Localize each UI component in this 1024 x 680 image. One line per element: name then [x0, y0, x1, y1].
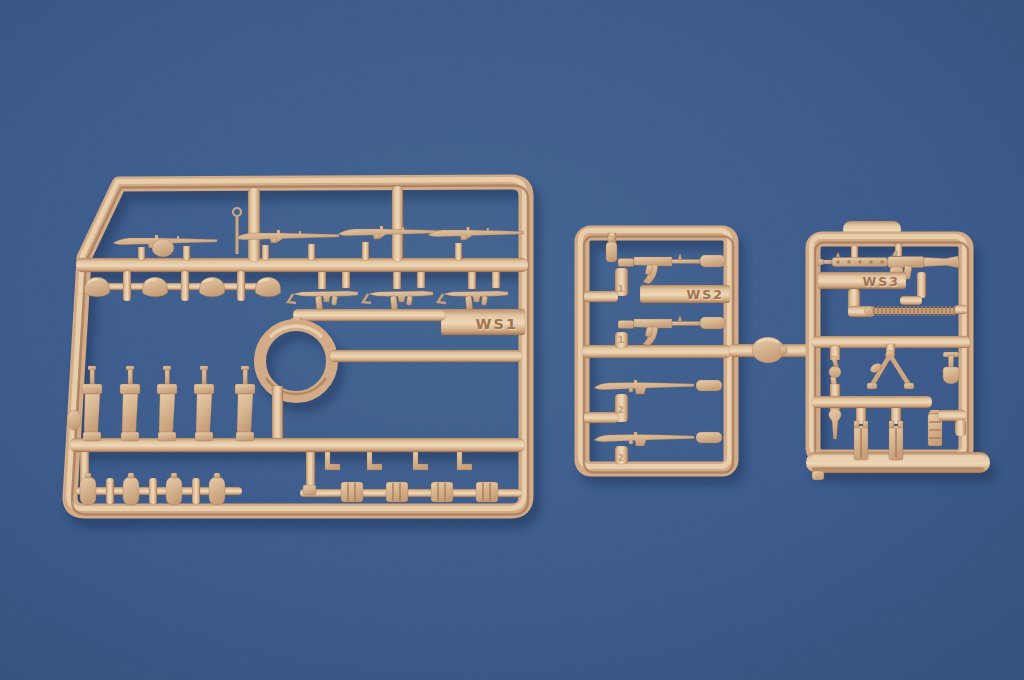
cross-stub	[149, 478, 157, 504]
runner	[330, 350, 522, 362]
ammo-pouch-part	[476, 482, 498, 502]
helmet-part	[255, 277, 280, 297]
runner	[293, 309, 445, 321]
cross-stub	[106, 478, 114, 504]
cross-stub	[192, 478, 200, 504]
gate-stub	[342, 272, 350, 288]
gate-stub	[262, 245, 269, 260]
cross-stub	[181, 271, 189, 301]
gate-stub	[306, 452, 315, 490]
helmet-part	[199, 277, 224, 297]
runner	[584, 412, 618, 423]
magazine-pouch-part	[889, 421, 903, 460]
gate-stub	[308, 244, 315, 260]
gate-stub	[917, 272, 926, 298]
runner-number: 1	[618, 284, 624, 294]
gate-stub	[183, 246, 190, 260]
gate-cylinder	[696, 380, 722, 391]
gate-cylinder	[696, 432, 722, 443]
photo-canvas: WS1 WS1	[0, 0, 1024, 680]
magazine-part	[606, 233, 617, 262]
gate-stub	[955, 305, 967, 314]
runner	[582, 345, 731, 358]
runner	[812, 396, 932, 408]
gate-cylinder	[700, 317, 725, 329]
gate-stub	[851, 246, 858, 258]
entrenching-tool-part	[943, 352, 959, 384]
gate-stub	[138, 247, 145, 260]
gate-stub	[417, 272, 425, 288]
runner	[900, 296, 922, 305]
gate-stub	[492, 272, 500, 288]
gate-cylinder	[700, 255, 725, 267]
ws1-tab: WS1 WS1	[441, 309, 525, 335]
gate-stub	[318, 272, 326, 289]
runner	[938, 410, 966, 421]
gate-stub	[468, 272, 476, 289]
cross-stub	[237, 271, 245, 301]
gate-stub	[393, 272, 401, 289]
runner	[392, 186, 403, 262]
helmet-part	[84, 277, 109, 297]
ammo-pouch-part	[386, 482, 408, 502]
runner-number: 1	[618, 335, 624, 345]
cross-stub	[123, 271, 131, 301]
shovel-head-part	[152, 239, 174, 257]
runner	[248, 188, 260, 262]
ws3-label: WS3	[863, 274, 901, 289]
ammo-pouch-part	[341, 482, 363, 502]
ws2-label: WS2	[687, 287, 725, 302]
runner-number: 2	[618, 405, 624, 415]
ws1-label: WS1	[475, 316, 518, 332]
helmet-part	[142, 277, 167, 297]
runner-number: 2	[618, 453, 624, 463]
foot-nub	[812, 471, 824, 480]
gate-stub	[272, 386, 283, 442]
gate-stub	[362, 242, 369, 260]
ammo-pouch-part	[431, 482, 453, 502]
magazine-pouch-part	[854, 421, 868, 460]
disc-part	[67, 410, 81, 430]
gate-stub	[955, 420, 966, 436]
gate-stub	[455, 243, 462, 260]
ws3-tab: WS3 WS3	[818, 272, 906, 290]
small-part	[303, 485, 316, 495]
runner	[584, 291, 618, 302]
ws2-tab: WS2 WS2	[640, 285, 730, 303]
